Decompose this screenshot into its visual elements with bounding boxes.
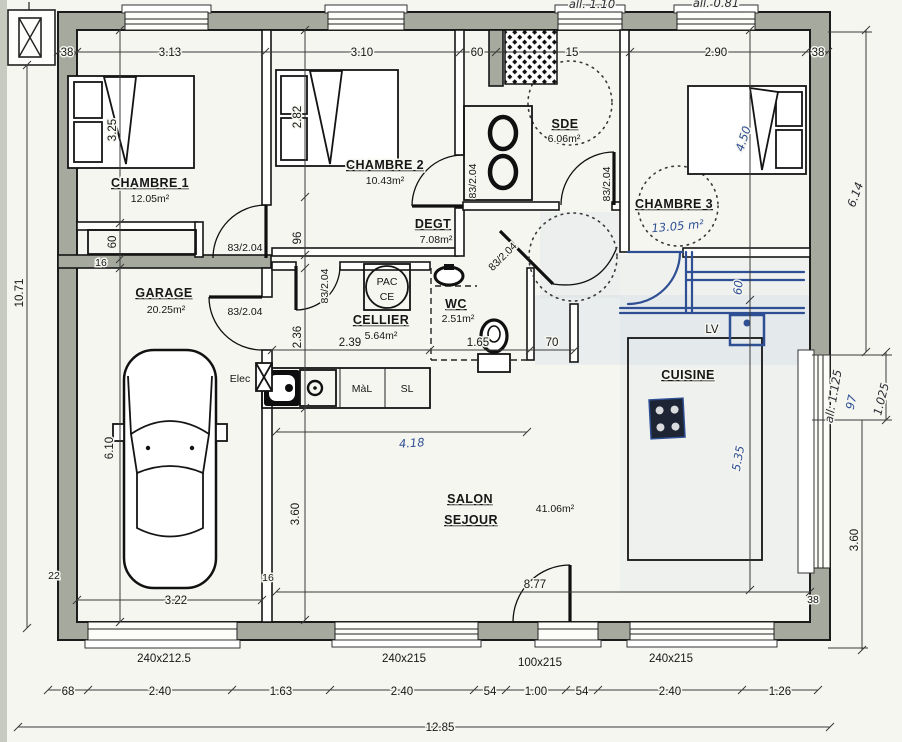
dim-top-38-left: 38 <box>61 47 74 59</box>
floor-plan-document: 38 3.13 3.10 60 15 2.90 38 all. 1.10 all… <box>0 0 902 742</box>
label-elec: Elec <box>230 373 250 385</box>
area-chambre1: 12.05m² <box>131 193 170 205</box>
allege-note-1: all. 1.10 <box>569 0 615 11</box>
dim-877: 8.77 <box>524 579 546 591</box>
dim-96: 96 <box>292 232 304 245</box>
allege-note-2: all. 0.81 <box>693 0 739 10</box>
floor-plan-drawing: 38 3.13 3.10 60 15 2.90 38 all. 1.10 all… <box>0 0 902 742</box>
opening-240x215-b: 240x215 <box>649 653 693 665</box>
window-chambre2 <box>325 5 407 30</box>
bay-window-right <box>798 350 830 573</box>
area-chambre3-handwritten: 13.05 m² <box>651 217 705 236</box>
chimney-vent-icon <box>8 2 55 65</box>
dim-top-290: 2.90 <box>705 47 727 59</box>
room-label-degt: DEGT <box>415 217 451 231</box>
window-cuisine <box>627 622 777 647</box>
dim-614-hand: 6.14 <box>844 180 866 209</box>
door-garage <box>209 297 262 350</box>
dim-top-313: 3.13 <box>159 47 181 59</box>
door-salon-terrace <box>513 565 570 622</box>
dim-bot-54b: 54 <box>576 686 589 698</box>
dim-165: 1.65 <box>467 337 489 349</box>
area-degt: 7.08m² <box>420 234 453 246</box>
area-cellier: 5.64m² <box>365 330 398 342</box>
dim-total-1285: 12.85 <box>426 722 455 734</box>
dim-left-total: 10.71 <box>14 279 26 308</box>
room-label-chambre3: CHAMBRE 3 <box>635 197 713 211</box>
dim-97-hand: 97 <box>843 393 860 411</box>
dim-418-hand: 4.18 <box>398 435 425 451</box>
label-dryer: SL <box>401 383 414 395</box>
dim-bot-100: 1.00 <box>525 686 547 698</box>
door-size-garage: 83/2.04 <box>227 306 262 318</box>
dim-bot-54a: 54 <box>484 686 497 698</box>
dim-bot-126: 1.26 <box>769 686 791 698</box>
wall-16-left: 16 <box>95 257 107 269</box>
entry-door-opening <box>535 622 601 647</box>
dim-bot-163: 1.63 <box>270 686 292 698</box>
dim-top-310: 3.10 <box>351 47 373 59</box>
dim-236: 2.36 <box>292 326 304 348</box>
dim-360-right: 3.60 <box>849 529 861 551</box>
room-label-garage: GARAGE <box>135 286 192 300</box>
label-washing-machine: MàL <box>352 383 373 395</box>
room-label-salon: SALON <box>447 492 493 506</box>
dim-60: 60 <box>107 236 119 249</box>
dim-bot-240a: 2.40 <box>149 686 171 698</box>
door-size-chambre3: 83/2.04 <box>601 166 613 201</box>
wall-38-right: 38 <box>807 594 819 606</box>
room-label-cuisine: CUISINE <box>661 368 715 382</box>
dim-282: 2.82 <box>292 106 304 128</box>
garage-door-opening <box>85 622 240 648</box>
dim-bot-240c: 2.40 <box>659 686 681 698</box>
dim-top-38-right: 38 <box>812 47 825 59</box>
opening-100x215: 100x215 <box>518 657 562 669</box>
dim-top-60: 60 <box>471 47 484 59</box>
dim-1025-hand: 1.025 <box>870 381 892 416</box>
elec-panel-icon <box>256 363 272 391</box>
area-chambre2: 10.43m² <box>366 175 405 187</box>
opening-240x215-a: 240x215 <box>382 653 426 665</box>
dim-239: 2.39 <box>339 337 361 349</box>
room-label-chambre2: CHAMBRE 2 <box>346 158 424 172</box>
wall-22: 22 <box>48 570 60 582</box>
door-cellier <box>296 266 340 310</box>
shower-icon <box>505 30 557 84</box>
wall-16-inner: 16 <box>262 572 274 584</box>
car-icon <box>113 350 227 588</box>
room-label-wc: WC <box>445 297 467 311</box>
door-size-entry: 83/2.04 <box>486 240 519 273</box>
door-size-chambre2: 83/2.04 <box>467 163 479 198</box>
area-wc: 2.51m² <box>442 313 475 325</box>
label-ce: CE <box>380 291 395 303</box>
wc-washbasin-icon <box>435 264 463 285</box>
room-label-sejour: SEJOUR <box>444 513 498 527</box>
dim-610: 6.10 <box>104 437 116 459</box>
label-pac: PAC <box>377 276 398 288</box>
room-label-sde: SDE <box>552 117 579 131</box>
hob-icon <box>649 398 685 439</box>
area-garage: 20.25m² <box>147 304 186 316</box>
closet <box>88 230 196 254</box>
opening-240x2125: 240x212.5 <box>137 653 191 665</box>
door-size-chambre1: 83/2.04 <box>227 242 262 254</box>
dim-360-salon: 3.60 <box>290 503 302 525</box>
dim-322: 3.22 <box>165 595 187 607</box>
window-salon <box>332 622 481 647</box>
area-salon: 41.06m² <box>536 503 575 515</box>
window-chambre1 <box>122 5 211 30</box>
dim-325: 3.25 <box>107 119 119 141</box>
dim-bot-240b: 2.40 <box>391 686 413 698</box>
dim-70: 70 <box>546 337 559 349</box>
room-label-chambre1: CHAMBRE 1 <box>111 176 189 190</box>
dim-top-15: 15 <box>566 47 579 59</box>
label-dishwasher: LV <box>705 324 719 336</box>
dim-60-hand: 60 <box>730 280 745 296</box>
room-label-cellier: CELLIER <box>353 313 409 327</box>
area-sde: 6.06m² <box>548 133 581 145</box>
door-size-cellier: 83/2.04 <box>319 268 331 303</box>
dim-bot-68: 68 <box>62 686 75 698</box>
bed-chambre1 <box>68 76 194 168</box>
